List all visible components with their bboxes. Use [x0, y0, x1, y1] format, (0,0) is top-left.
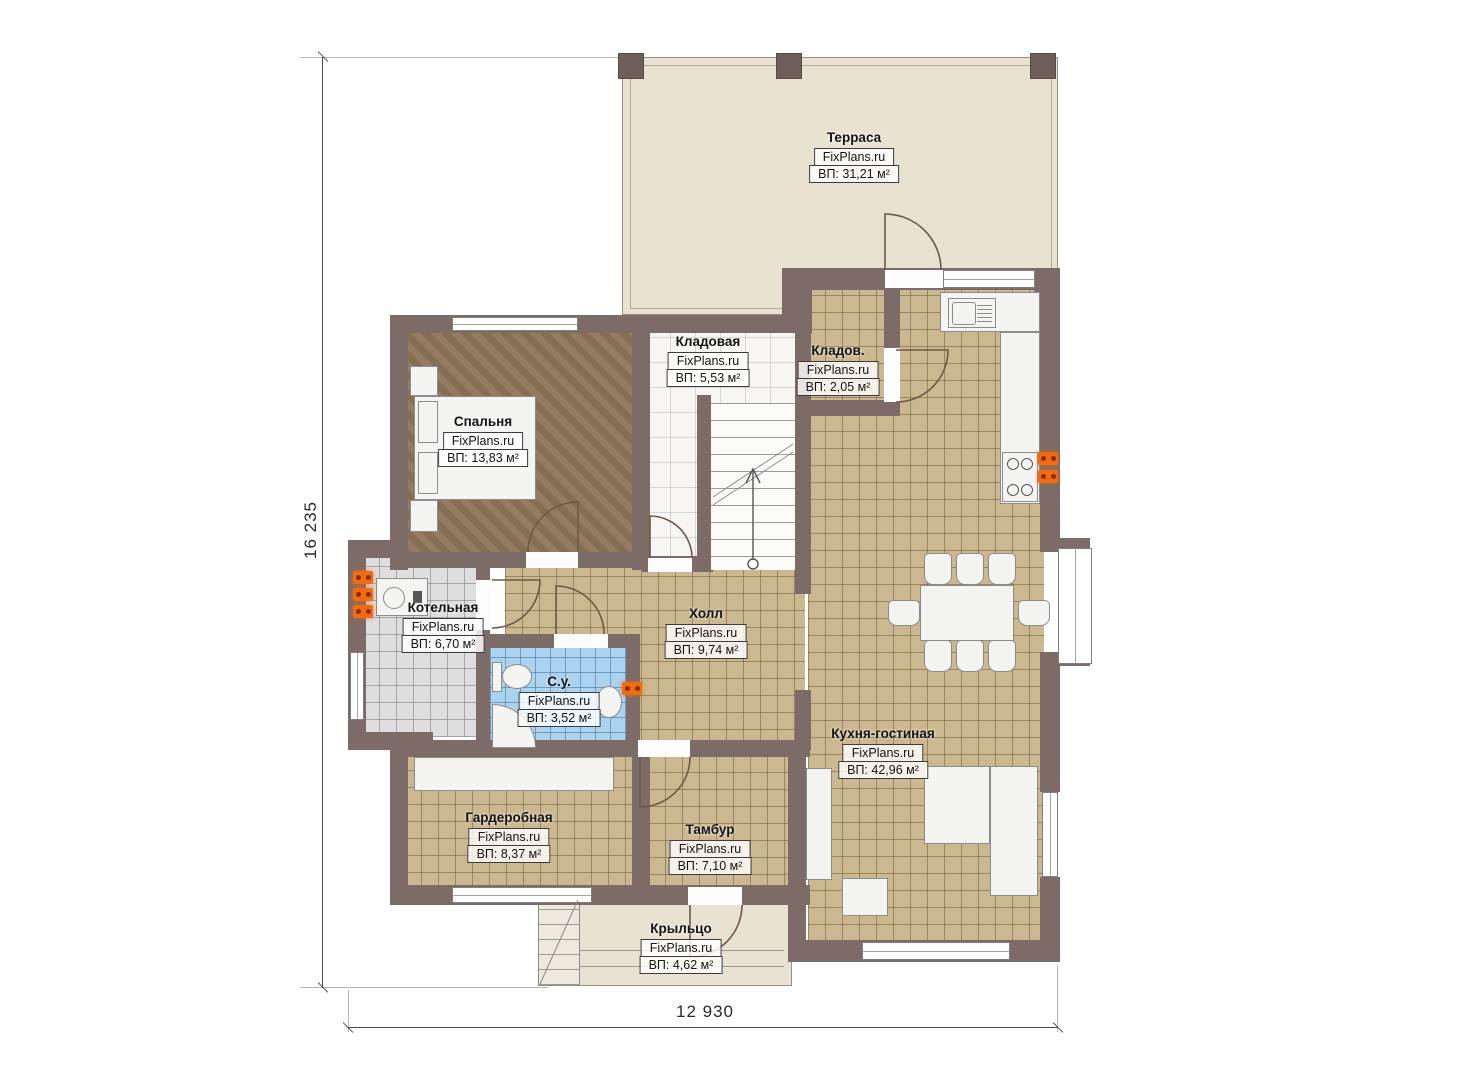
- door-opening: [648, 558, 692, 572]
- room-area: ВП: 42,96 м²: [838, 761, 928, 779]
- room-name: Котельная: [408, 600, 479, 615]
- room-name: Холл: [689, 606, 723, 621]
- wall: [1040, 652, 1060, 792]
- burner: [1021, 484, 1033, 496]
- watermark: FixPlans.ru: [443, 432, 524, 450]
- window: [452, 317, 578, 331]
- sink-basin: [952, 302, 976, 325]
- room-area: ВП: 2,05 м²: [797, 378, 880, 396]
- kitchen-sink: [948, 298, 996, 328]
- dining-chair: [956, 553, 984, 585]
- dining-chair: [1018, 600, 1050, 626]
- tv-stand: [806, 768, 832, 880]
- door-opening: [884, 348, 900, 402]
- dining-chair: [956, 640, 984, 672]
- room-label-terrace: Терраса FixPlans.ru ВП: 31,21 м²: [809, 130, 899, 183]
- door-opening: [526, 552, 578, 568]
- window: [452, 887, 592, 903]
- wall: [1040, 268, 1060, 538]
- nightstand: [410, 366, 438, 396]
- room-name: Терраса: [827, 130, 881, 145]
- power-outlet-icon: [353, 588, 373, 601]
- dining-chair: [924, 640, 952, 672]
- coffee-table: [842, 878, 888, 916]
- dimension-line-vertical: [322, 57, 323, 988]
- room-name: Кухня-гостиная: [831, 726, 934, 741]
- wall: [788, 740, 806, 962]
- power-outlet-icon: [353, 571, 373, 584]
- room-area: ВП: 7,10 м²: [669, 857, 752, 875]
- wall: [632, 740, 650, 905]
- door-opening: [688, 887, 742, 905]
- watermark: FixPlans.ru: [670, 840, 751, 858]
- stairs: [711, 403, 795, 570]
- dining-chair: [988, 640, 1016, 672]
- terrace-pillar: [1030, 53, 1056, 79]
- room-area: ВП: 3,52 м²: [518, 709, 601, 727]
- dimension-height-label: 16 235: [301, 501, 321, 559]
- power-outlet-icon: [1038, 452, 1058, 465]
- room-label-hall: Холл FixPlans.ru ВП: 9,74 м²: [665, 606, 748, 659]
- wall: [795, 290, 811, 572]
- toilet-tank: [492, 662, 502, 692]
- wall: [390, 740, 810, 757]
- watermark: FixPlans.ru: [469, 828, 550, 846]
- room-area: ВП: 9,74 м²: [665, 641, 748, 659]
- room-name: Кладовая: [676, 334, 741, 349]
- dining-chair: [924, 553, 952, 585]
- wall: [390, 552, 650, 568]
- dining-chair: [888, 600, 920, 626]
- burner: [1007, 484, 1019, 496]
- window: [862, 942, 1010, 960]
- power-outlet-icon: [353, 605, 373, 618]
- room-name: Крыльцо: [650, 921, 711, 936]
- door-opening: [638, 740, 690, 757]
- room-name: Спальня: [454, 414, 512, 429]
- bed-pillow: [418, 452, 438, 494]
- room-area: ВП: 4,62 м²: [640, 956, 723, 974]
- window: [1042, 792, 1058, 877]
- extension-line: [300, 987, 548, 988]
- room-area: ВП: 6,70 м²: [402, 635, 485, 653]
- wall: [795, 560, 811, 594]
- door-opening: [554, 634, 608, 648]
- terrace-pillar: [776, 53, 802, 79]
- watermark: FixPlans.ru: [403, 618, 484, 636]
- room-area: ВП: 5,53 м²: [667, 369, 750, 387]
- room-area: ВП: 31,21 м²: [809, 165, 899, 183]
- watermark: FixPlans.ru: [668, 352, 749, 370]
- dining-chair: [988, 553, 1016, 585]
- room-name: Тамбур: [686, 822, 735, 837]
- extension-line: [300, 57, 622, 58]
- room-label-boiler: Котельная FixPlans.ru ВП: 6,70 м²: [402, 600, 485, 653]
- power-outlet-icon: [622, 682, 642, 695]
- door-opening: [885, 270, 943, 288]
- wall: [632, 315, 650, 570]
- room-area: ВП: 8,37 м²: [468, 845, 551, 863]
- room-area: ВП: 13,83 м²: [438, 449, 528, 467]
- room-label-kitchen-living: Кухня-гостиная FixPlans.ru ВП: 42,96 м²: [831, 726, 934, 779]
- burner: [1021, 458, 1033, 470]
- room-label-storage-large: Кладовая FixPlans.ru ВП: 5,53 м²: [667, 334, 750, 387]
- wall: [697, 395, 711, 572]
- watermark: FixPlans.ru: [843, 744, 924, 762]
- extension-line: [1057, 965, 1058, 1032]
- wall: [390, 748, 408, 905]
- wardrobe-closet: [414, 757, 614, 791]
- window: [943, 270, 1035, 288]
- room-name: Гардеробная: [465, 810, 552, 825]
- room-label-bedroom: Спальня FixPlans.ru ВП: 13,83 м²: [438, 414, 528, 467]
- window: [1058, 548, 1092, 664]
- porch-steps: [538, 898, 580, 986]
- bed-pillow: [418, 401, 438, 443]
- terrace-pillar: [618, 53, 644, 79]
- watermark: FixPlans.ru: [666, 624, 747, 642]
- nightstand: [410, 500, 438, 532]
- room-name: Кладов.: [811, 343, 864, 358]
- extension-line: [348, 990, 349, 1032]
- room-name: С.у.: [547, 674, 571, 689]
- dimension-width-label: 12 930: [676, 1002, 734, 1022]
- room-label-porch: Крыльцо FixPlans.ru ВП: 4,62 м²: [640, 921, 723, 974]
- watermark: FixPlans.ru: [798, 361, 879, 379]
- stove: [1002, 452, 1038, 502]
- sofa: [990, 766, 1038, 896]
- room-label-bathroom: С.у. FixPlans.ru ВП: 3,52 м²: [518, 674, 601, 727]
- room-label-vestibule: Тамбур FixPlans.ru ВП: 7,10 м²: [669, 822, 752, 875]
- dimension-line-horizontal: [348, 1027, 1058, 1028]
- burner: [1007, 458, 1019, 470]
- wall: [390, 315, 408, 570]
- room-label-wardrobe: Гардеробная FixPlans.ru ВП: 8,37 м²: [465, 810, 552, 863]
- power-outlet-icon: [1038, 470, 1058, 483]
- dining-table: [920, 585, 1014, 641]
- window: [350, 652, 364, 720]
- watermark: FixPlans.ru: [641, 939, 722, 957]
- sink-drainboard: [977, 303, 992, 322]
- room-label-storage-small: Кладов. FixPlans.ru ВП: 2,05 м²: [797, 343, 880, 396]
- watermark: FixPlans.ru: [519, 692, 600, 710]
- floor-plan-canvas: Терраса FixPlans.ru ВП: 31,21 м² Спальня…: [0, 0, 1474, 1080]
- watermark: FixPlans.ru: [814, 148, 895, 166]
